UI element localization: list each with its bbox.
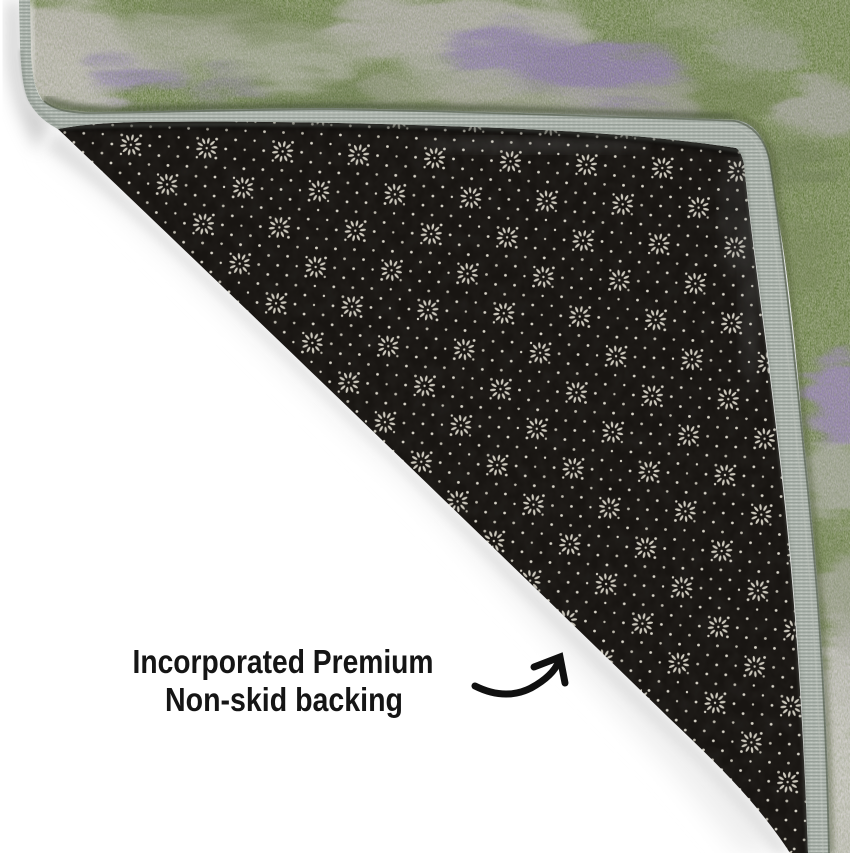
svg-text:Non-skid backing: Non-skid backing	[165, 681, 403, 718]
svg-text:Incorporated Premium: Incorporated Premium	[133, 643, 434, 680]
